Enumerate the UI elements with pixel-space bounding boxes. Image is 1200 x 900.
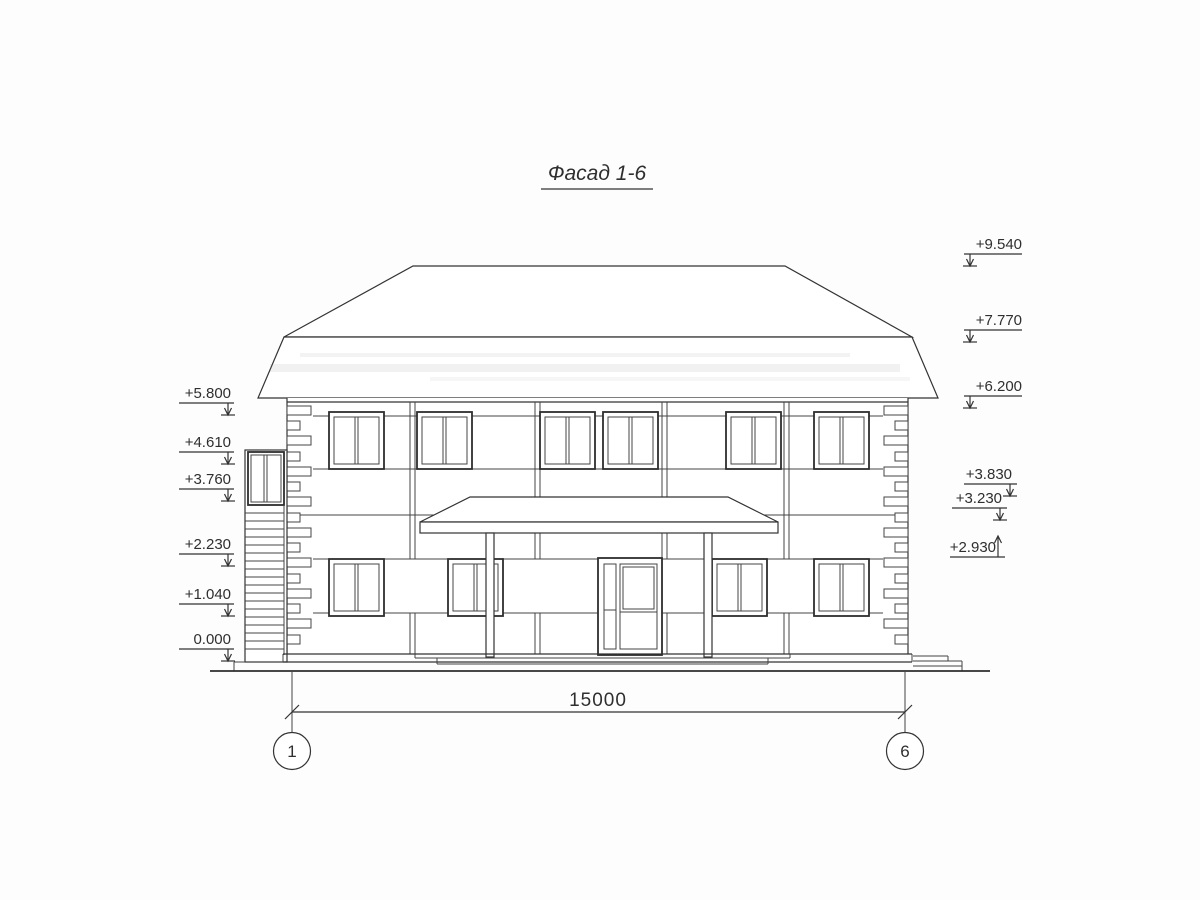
entrance-door: [598, 558, 662, 655]
scan-streak: [430, 377, 910, 381]
roof-upper-slope: [284, 266, 912, 337]
elevation-marks-left: +5.800 +4.610 +3.760 +2.230: [179, 385, 235, 661]
elevation-value: +3.760: [185, 471, 231, 488]
elevation-value: +6.200: [976, 378, 1022, 395]
elevation-value: 0.000: [193, 631, 231, 648]
dimension-value: 15000: [569, 690, 627, 711]
window: [712, 559, 767, 616]
elevation-mark: +7.770: [963, 312, 1022, 342]
canopy-fascia: [420, 522, 778, 533]
title-text: Фасад 1-6: [548, 162, 647, 185]
window: [603, 412, 658, 469]
elevation-value: +3.230: [956, 490, 1002, 507]
window: [814, 559, 869, 616]
window: [814, 412, 869, 469]
stair-tower: [245, 450, 287, 662]
elevation-value: +9.540: [976, 236, 1022, 253]
axis-marker-1: 1: [274, 733, 311, 770]
axis-number: 6: [900, 742, 909, 761]
window: [726, 412, 781, 469]
elevation-mark: +1.040: [179, 586, 235, 616]
axis-number: 1: [287, 742, 296, 761]
elevation-mark: +5.800: [179, 385, 235, 415]
elevation-mark: +3.760: [179, 471, 235, 501]
canopy-column: [704, 533, 712, 657]
elevation-value: +7.770: [976, 312, 1022, 329]
window: [329, 559, 384, 616]
drawing-sheet: Фасад 1-6: [0, 0, 1200, 900]
dimension-and-axes: 15000 1 6: [274, 672, 924, 770]
elevation-mark: +9.540: [963, 236, 1022, 266]
entrance-canopy: [420, 497, 778, 533]
drawing-title: Фасад 1-6: [541, 162, 653, 189]
elevation-mark: +2.230: [179, 536, 235, 566]
elevation-marks-right: +9.540 +7.770 +6.200 +3.830: [950, 236, 1022, 557]
elevation-value: +1.040: [185, 586, 231, 603]
stair-tower-window: [248, 452, 284, 505]
elevation-mark: +2.930: [950, 536, 1005, 557]
elevation-value: +4.610: [185, 434, 231, 451]
canopy-column: [486, 533, 494, 657]
window: [329, 412, 384, 469]
window: [448, 559, 503, 616]
base-and-ground: [210, 654, 990, 671]
scan-streak: [270, 364, 900, 372]
roof: [258, 266, 938, 398]
elevation-value: +5.800: [185, 385, 231, 402]
elevation-value: +2.230: [185, 536, 231, 553]
scan-streak: [300, 353, 850, 357]
elevation-mark: 0.000: [179, 631, 235, 661]
elevation-value: +2.930: [950, 539, 996, 556]
elevation-mark: +6.200: [963, 378, 1022, 408]
window: [540, 412, 595, 469]
window: [417, 412, 472, 469]
elevation-mark: +4.610: [179, 434, 235, 464]
elevation-value: +3.830: [966, 466, 1012, 483]
facade-elevation-drawing: Фасад 1-6: [0, 0, 1200, 900]
canopy-top: [420, 497, 778, 522]
side-steps: [913, 656, 962, 671]
axis-marker-6: 6: [887, 733, 924, 770]
elevation-mark: +3.230: [952, 490, 1007, 520]
